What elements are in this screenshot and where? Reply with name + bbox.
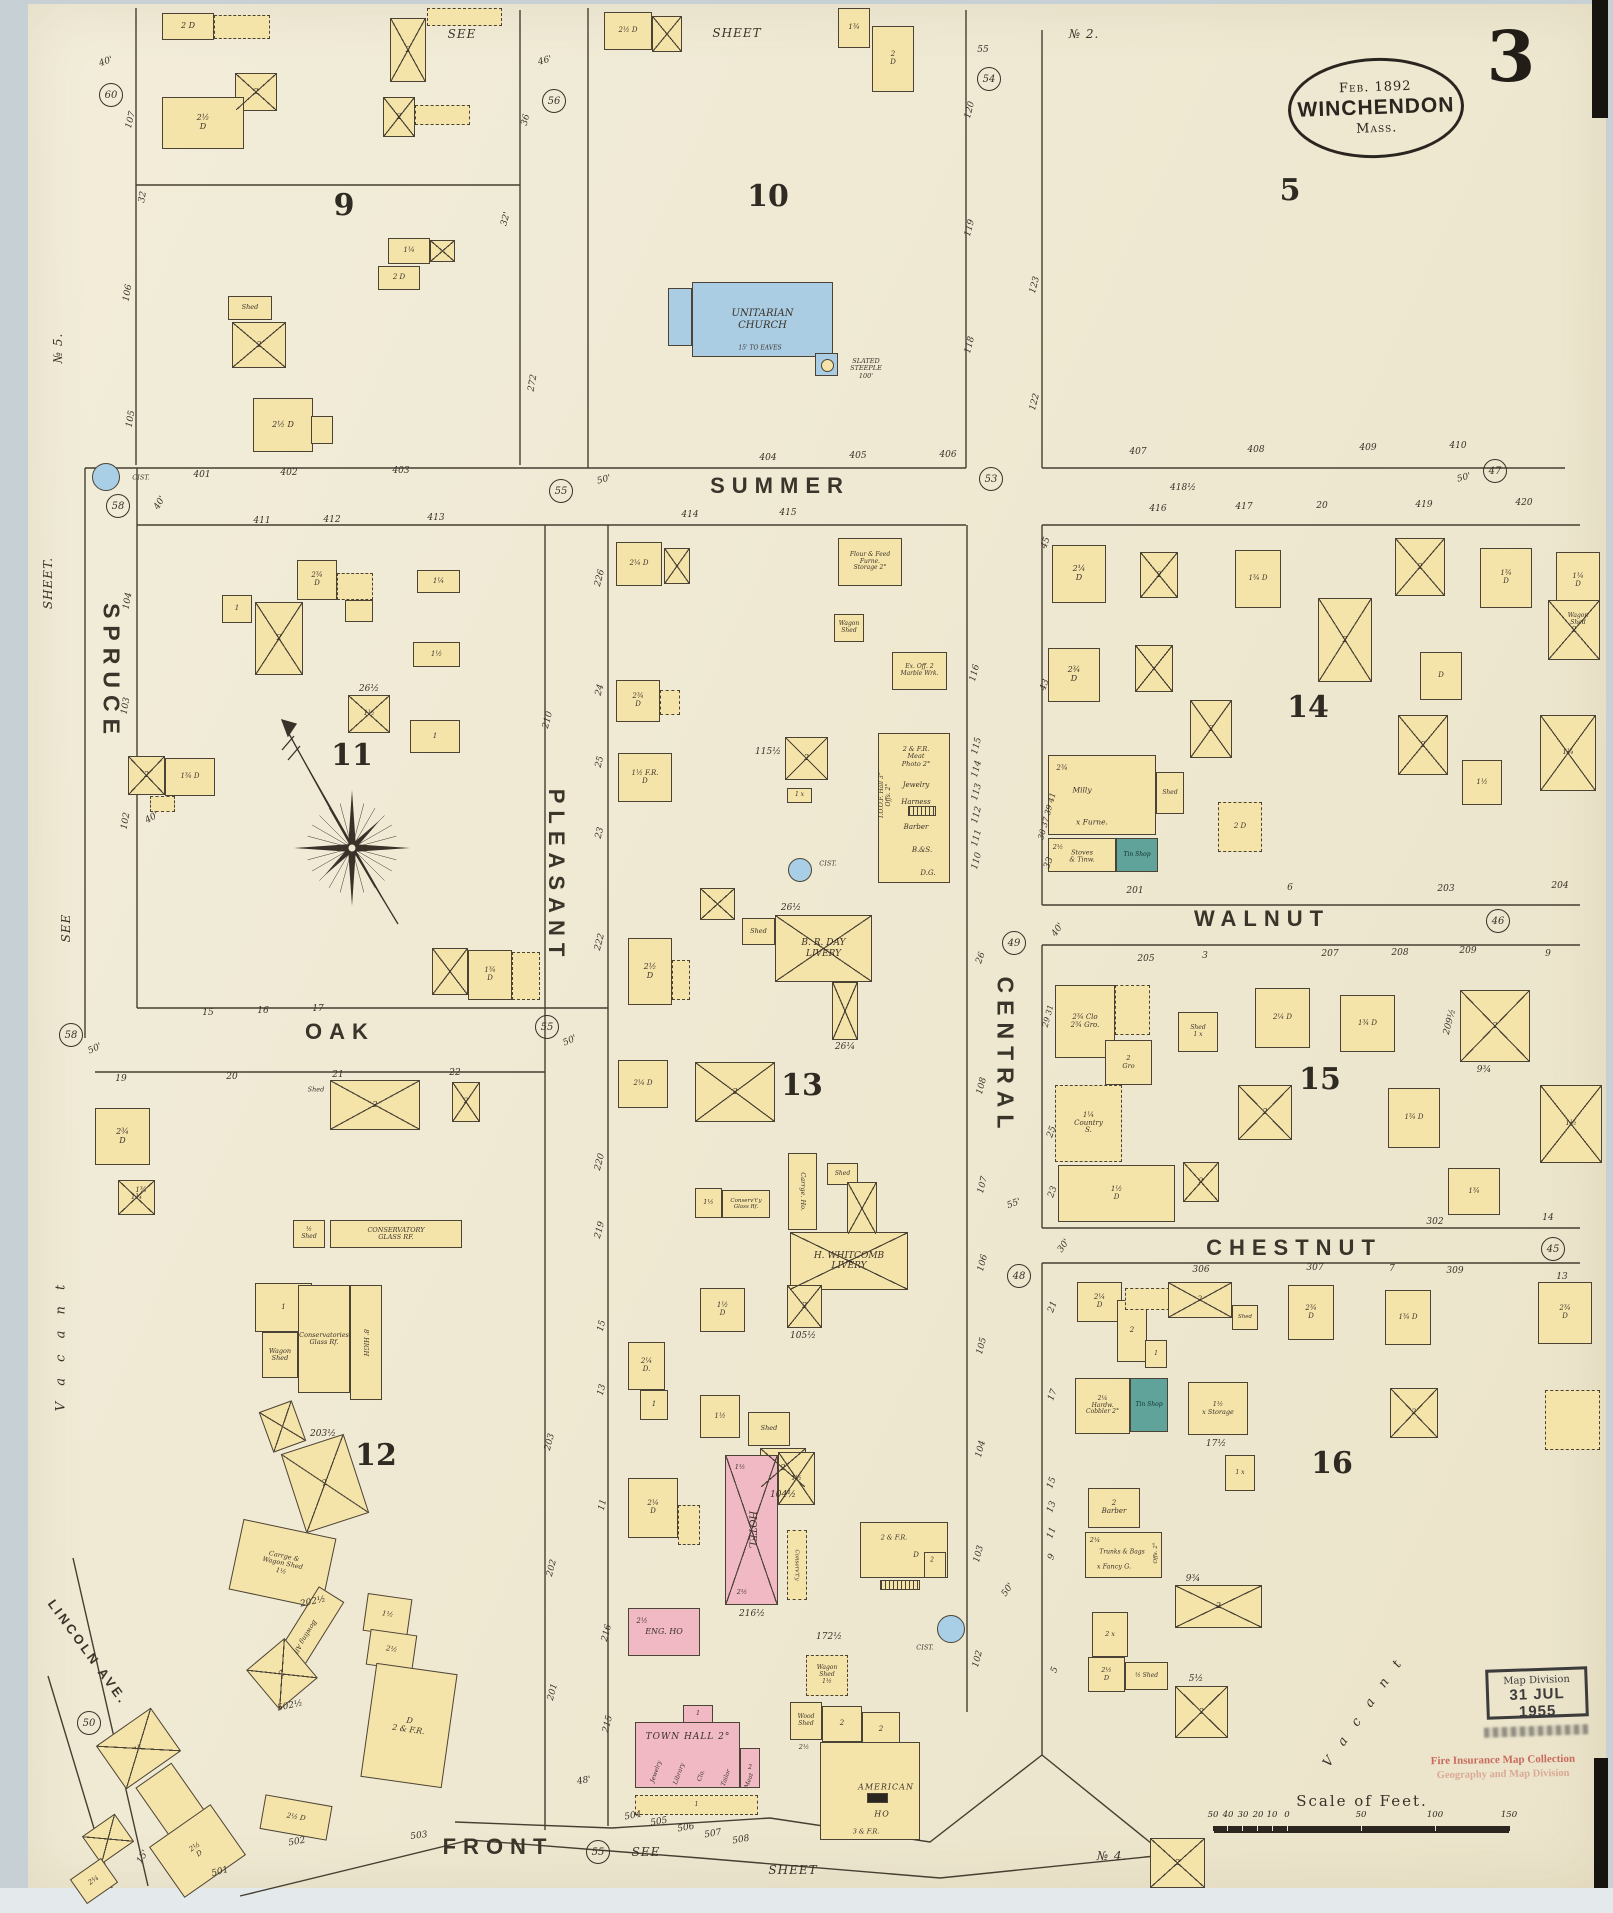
map-label: 415: [779, 508, 796, 518]
building: 2: [695, 1062, 775, 1122]
building: 2¼ D: [1077, 1282, 1122, 1322]
building-label: 2½: [385, 1645, 397, 1654]
building: [700, 888, 735, 920]
building-label: 1½ D: [1111, 1186, 1122, 1202]
building-label: Flour & Feed Furne. Storage 2°: [850, 552, 890, 572]
street-line: [1042, 1755, 1162, 1852]
building: [815, 353, 838, 376]
distance-marker: 55: [535, 1015, 559, 1039]
building-label: 2: [732, 1088, 737, 1097]
block-number: 11: [331, 741, 373, 771]
building: 2¼ D: [618, 1060, 668, 1108]
building-label: 2¾ Clo 2¾ Gro.: [1071, 1014, 1100, 1030]
building: [652, 16, 682, 52]
building-label: 1½: [1565, 1120, 1576, 1128]
building-label: 1¾: [131, 1194, 142, 1202]
map-label: x Furne.: [1076, 819, 1108, 828]
building-label: CONSERVATORY GLASS RF.: [367, 1227, 424, 1242]
building: 2: [1238, 1085, 1292, 1140]
building-label: 1¾: [848, 24, 859, 32]
building: 1¼ Country S.: [1055, 1085, 1122, 1162]
building: [678, 1505, 700, 1545]
map-label: 17: [312, 1004, 323, 1014]
map-label: 1½: [735, 1463, 745, 1471]
building: 2: [1318, 598, 1372, 682]
building-label: 2: [1130, 1327, 1134, 1335]
building: ENG. HO: [628, 1608, 700, 1656]
street-label: CENTRAL: [994, 977, 1017, 1136]
map-label: AMERICAN: [858, 1783, 914, 1792]
cistern: [92, 463, 120, 491]
building-label: 1: [433, 733, 437, 741]
map-label: 409: [1359, 443, 1376, 453]
building-label: 1½ D: [717, 1302, 728, 1318]
map-label: 16: [257, 1006, 268, 1016]
building-label: 2: [144, 771, 149, 780]
map-label: 19: [115, 1074, 126, 1084]
building: 8' HIGH: [350, 1285, 382, 1400]
building-label: 2¾ D: [116, 1128, 129, 1146]
map-label: 5½: [1189, 1674, 1203, 1684]
map-label: 55: [977, 45, 988, 55]
building-label: 1: [235, 605, 239, 613]
building-label: 1½ F.R. D: [632, 770, 659, 786]
building: 1½ D: [700, 1288, 745, 1332]
building-label: 2: [840, 1720, 844, 1728]
building: 2: [390, 18, 426, 82]
building: 1 x: [1225, 1455, 1255, 1491]
map-label: 407: [1129, 447, 1146, 457]
building: 1¾: [1448, 1168, 1500, 1215]
map-label: CIST.: [132, 474, 149, 481]
map-label: 420: [1515, 498, 1532, 508]
building: [832, 982, 858, 1040]
building-label: 2: [1262, 1108, 1267, 1117]
map-label: I.O.O.F. Hall 3° Offs. 2°: [879, 772, 893, 818]
map-label: № 2.: [1069, 27, 1100, 41]
map-label: SHEET.: [41, 557, 55, 609]
building-label: 2 D: [1234, 823, 1246, 831]
building: 2 D: [378, 266, 420, 290]
building: H. WHITCOMB LIVERY: [790, 1232, 908, 1290]
building: Conserv't'y Glass Rf.: [722, 1190, 770, 1218]
block-number: 16: [1311, 1449, 1353, 1479]
building-label: Conservatories Glass Rf.: [299, 1332, 349, 1347]
map-label: 32: [137, 190, 149, 203]
map-label: 405: [849, 451, 866, 461]
map-label: 208: [1391, 948, 1408, 958]
building-label: 2: [253, 88, 258, 97]
building: [668, 288, 692, 346]
building-label: UNITARIAN CHURCH: [732, 308, 794, 330]
building-label: 8' HIGH: [362, 1329, 369, 1356]
building-label: Shed: [1238, 1314, 1252, 1320]
map-label: 26½: [359, 684, 379, 694]
building: 1¾ D: [1340, 995, 1395, 1052]
building: 2¾ D: [616, 680, 660, 722]
map-label: 2¾: [1056, 764, 1067, 772]
map-label: 418½: [1170, 483, 1196, 493]
building: Shed: [748, 1412, 790, 1446]
scale-tick-label: 50: [1356, 1810, 1367, 1820]
building-label: Shed: [750, 928, 767, 935]
map-label: CIST.: [916, 1644, 933, 1651]
street-label: CHESTNUT: [1206, 1237, 1382, 1259]
distance-marker: 53: [979, 467, 1003, 491]
building-label: 1¼: [1562, 749, 1573, 757]
building: 2: [785, 737, 828, 780]
building-label: 1: [696, 1711, 700, 1718]
building: [924, 1552, 946, 1578]
building: 1: [640, 1390, 668, 1420]
distance-marker: 58: [106, 494, 130, 518]
title-city: WINCHENDON: [1297, 93, 1455, 124]
map-label: 105½: [790, 1331, 816, 1341]
map-label: 203½: [310, 1429, 336, 1439]
building-label: 2: [1208, 725, 1213, 734]
building-label: 1¼ Country S.: [1074, 1112, 1103, 1135]
building: 1: [410, 720, 460, 753]
building-label: 2: [321, 1478, 329, 1488]
building: [345, 600, 373, 622]
building: 1¾: [838, 8, 870, 48]
map-label: 302: [1426, 1217, 1443, 1227]
building: [660, 690, 680, 715]
building-label: 2: [780, 1464, 785, 1473]
scale-tick-label: 100: [1427, 1810, 1443, 1820]
map-label: SHEET: [768, 1863, 817, 1877]
building-label: 2: [256, 341, 261, 350]
map-label: Milly: [1072, 787, 1091, 796]
building: Tin Shop: [1116, 838, 1158, 872]
building-label: HOTEL: [746, 1511, 757, 1549]
map-label: D.G.: [920, 869, 935, 877]
building: [1545, 1390, 1600, 1450]
map-label: Trunks & Bags: [1099, 1550, 1144, 1557]
building-label: 2: [372, 1101, 377, 1110]
building: [311, 416, 333, 444]
building-label: 2 D: [393, 274, 405, 282]
map-label: 7: [1389, 1264, 1395, 1274]
building-label: Tin Shop: [1135, 1402, 1162, 1409]
building-label: B. R. DAY LIVERY: [801, 938, 845, 958]
building: 2: [1183, 1162, 1219, 1202]
map-label: 402: [280, 468, 297, 478]
building-label: 2: [1156, 571, 1161, 580]
building-label: 1: [652, 1401, 656, 1409]
map-label: 207: [1321, 949, 1338, 959]
building: 1 x: [787, 788, 812, 803]
building-label: 1¼ D: [1572, 573, 1583, 589]
block-number: 15: [1299, 1065, 1341, 1095]
building-label: 1¾: [1468, 1188, 1479, 1196]
map-label: 20: [226, 1072, 237, 1082]
block-number: 14: [1287, 693, 1329, 723]
library-date-stamp: Map Division 31 JUL 1955: [1485, 1666, 1589, 1720]
distance-marker: 47: [1483, 459, 1507, 483]
map-label: 2 & F.R.: [881, 1534, 908, 1541]
building-label: 2½ D: [272, 421, 294, 430]
building: 2 D: [872, 26, 914, 92]
building-label: 2¼ D: [633, 1080, 652, 1088]
building-label: Ex. Off. 2 Marble Wrk.: [900, 664, 938, 677]
distance-marker: 60: [99, 83, 123, 107]
building-label: 2½ D: [197, 114, 210, 132]
building: 2¼ D.: [628, 1342, 665, 1390]
building: 2 Gro: [1105, 1040, 1152, 1085]
building-label: 2¾ D: [1305, 1305, 1316, 1321]
scale-bar: [1213, 1826, 1510, 1831]
building-label: Shed: [835, 1171, 850, 1178]
map-label: 13: [1556, 1272, 1567, 1282]
building: 2: [255, 602, 303, 675]
building-label: 2: [1342, 636, 1347, 645]
building-label: 1¾ D: [1404, 1114, 1423, 1122]
building-label: Wagon Shed: [269, 1348, 291, 1363]
building: [432, 948, 468, 995]
building: 1½: [348, 695, 390, 733]
building-label: Shed: [761, 1425, 778, 1432]
building-label: 2¼ Hardw. Cobbler 2°: [1086, 1396, 1119, 1416]
map-label: 2½: [737, 1588, 747, 1596]
building-label: ½: [133, 1743, 143, 1753]
building-label: 2: [1199, 1178, 1203, 1186]
map-label: SLATED STEEPLE 100': [850, 358, 882, 380]
title-state: Mass.: [1356, 120, 1398, 136]
map-label: SEE: [59, 914, 73, 943]
building: Wagon Shed: [262, 1332, 298, 1378]
map-label: 404: [759, 453, 776, 463]
map-label: № 4.: [1097, 1849, 1128, 1863]
building: 2 D: [1218, 802, 1262, 852]
block-number: 13: [781, 1071, 823, 1101]
building: 1: [1145, 1340, 1167, 1368]
building-label: Shed: [242, 304, 259, 311]
street-label: SPRUCE: [100, 603, 123, 741]
map-label: 3 & F.R.: [853, 1828, 880, 1835]
building-label: 2½ D: [188, 1841, 206, 1860]
building: 2¼ D: [628, 1478, 678, 1538]
map-label: 2: [930, 1557, 934, 1564]
map-label: 216½: [739, 1609, 765, 1619]
building: Conserv't'y: [787, 1530, 807, 1600]
building-label: 1: [695, 1802, 699, 1809]
building: 1½ x Storage: [1188, 1382, 1248, 1435]
building: 1½: [695, 1188, 722, 1218]
building-label: 1½: [1476, 779, 1487, 787]
building: B. R. DAY LIVERY: [775, 915, 872, 982]
map-label: SHEET: [712, 26, 761, 40]
scale-tick-label: 40: [1223, 1810, 1234, 1820]
collection-stamp: Fire Insurance Map Collection Geography …: [1428, 1753, 1578, 1782]
building: Wagon Shed 1½: [806, 1655, 848, 1696]
building: Ex. Off. 2 Marble Wrk.: [892, 652, 947, 690]
building-label: 1¾ D: [1358, 1020, 1377, 1028]
map-label: 410: [1449, 441, 1466, 451]
building: [664, 548, 690, 584]
building-label: ½ Shed: [1135, 1673, 1158, 1680]
building-label: 1½: [791, 1475, 801, 1482]
building: Flour & Feed Furne. Storage 2°: [838, 538, 902, 586]
building-label: Carrge. Ho.: [799, 1172, 806, 1211]
building-label: Conserv't'y: [794, 1549, 800, 1580]
building: Conservatories Glass Rf.: [298, 1285, 350, 1393]
building-label: 2¼ D: [647, 1500, 658, 1516]
building: 2: [383, 97, 415, 137]
building: 2¾ D: [95, 1108, 150, 1165]
street-label: SUMMER: [710, 475, 850, 497]
map-label: 2 & F.R. Meat Photo 2°: [902, 746, 930, 768]
building-label: 2: [405, 46, 410, 55]
map-label: 20: [1316, 501, 1327, 511]
building: 1¼: [388, 238, 430, 264]
map-label: CIST.: [819, 860, 836, 867]
building: 1½: [1462, 760, 1502, 805]
map-label: 2¼: [1090, 1536, 1100, 1544]
building: [908, 806, 936, 816]
distance-marker: 55: [549, 479, 573, 503]
distance-marker: 56: [542, 89, 566, 113]
building: 1¾ D: [468, 950, 512, 1000]
building: 2: [787, 1285, 822, 1328]
building-label: 2¼ D: [1273, 1014, 1292, 1022]
building: 2: [1390, 1388, 1438, 1438]
building: Shed 1 x: [1178, 1012, 1218, 1052]
building: 2: [822, 1706, 862, 1742]
building: 2: [1168, 1282, 1232, 1318]
building: 2: [1140, 552, 1178, 598]
building: 2½ D: [162, 97, 244, 149]
building-label: 1½: [703, 1199, 713, 1206]
building-label: 1½: [381, 1610, 393, 1619]
building: 2: [1175, 1686, 1228, 1738]
building-label: 1½: [431, 651, 442, 659]
building: Shed: [1232, 1305, 1258, 1330]
map-label: 2½: [636, 1617, 647, 1625]
map-label: 14: [1542, 1213, 1553, 1223]
sheet-number: 3: [1476, 22, 1546, 92]
building-label: 2: [277, 1669, 287, 1679]
distance-marker: 58: [59, 1023, 83, 1047]
map-label: 9: [1545, 949, 1551, 959]
building: [672, 960, 690, 1000]
building-label: 2: [1492, 1022, 1497, 1031]
map-label: 416: [1149, 504, 1166, 514]
building-label: 2: [1420, 741, 1425, 750]
building: 2¼ Hardw. Cobbler 2°: [1075, 1378, 1130, 1434]
building: 1: [635, 1795, 758, 1815]
building: 2: [128, 756, 165, 795]
map-label: x Fancy G.: [1097, 1563, 1131, 1570]
building: 2¾ D: [297, 560, 337, 600]
building: 2½ D: [628, 938, 672, 1005]
building: Wood Shed: [790, 1702, 822, 1740]
map-label: D: [913, 1551, 919, 1559]
building: [867, 1793, 888, 1803]
scale-title: Scale of Feet.: [1296, 1792, 1428, 1810]
building-label: 2¼ D: [1073, 565, 1086, 583]
map-label: TOWN HALL 2°: [646, 1732, 731, 1742]
building-label: 2½ D: [618, 27, 637, 35]
distance-marker: 45: [1541, 1237, 1565, 1261]
building: 2 Barber: [1088, 1488, 1140, 1528]
block-number: 5: [1280, 176, 1301, 206]
building-label: 2: [802, 1302, 807, 1311]
map-label: 15: [202, 1008, 213, 1018]
scale-tick-label: 0: [1284, 1810, 1289, 1820]
building: Shed: [228, 296, 272, 320]
building-label: 2: [396, 113, 401, 122]
map-label: 406: [939, 450, 956, 460]
building-label: 2: [464, 1098, 468, 1106]
building: 2½ D: [1088, 1657, 1125, 1692]
building: 2: [1460, 990, 1530, 1062]
building: 2¼ D: [616, 542, 662, 586]
building-label: 2¾ D: [1559, 1305, 1570, 1321]
building: Shed: [1156, 772, 1184, 814]
map-label: Harness: [901, 798, 930, 806]
distance-marker: 49: [1002, 931, 1026, 955]
street-label: PLEASANT: [545, 789, 567, 964]
building-label: D: [1438, 672, 1444, 680]
map-label: Wagon Shed: [1568, 613, 1589, 627]
street-line: [240, 1840, 1165, 1896]
map-label: HO: [874, 1810, 890, 1819]
building-label: 1½ x Storage: [1202, 1401, 1234, 1416]
map-label: 17½: [1206, 1439, 1226, 1449]
building-label: Shed: [1162, 790, 1177, 797]
map-label: Shed: [308, 1086, 325, 1093]
map-label: 413: [427, 513, 444, 523]
building-label: Wagon Shed 1½: [817, 1665, 838, 1685]
building-label: 2: [1216, 1602, 1221, 1611]
building-label: 2¼ D: [629, 560, 648, 568]
map-label: 2½: [799, 1743, 809, 1751]
building: 1½ D: [1058, 1165, 1175, 1222]
scale-tick-label: 30: [1238, 1810, 1249, 1820]
building-label: 2 x: [1105, 1631, 1115, 1638]
building: 2¾ D: [1288, 1285, 1334, 1340]
building-label: 1¾ D: [1398, 1314, 1417, 1322]
building-label: 2: [1412, 1409, 1416, 1417]
scale-tick-label: 50: [1208, 1810, 1219, 1820]
building: D 2 & F.R.: [360, 1663, 457, 1788]
map-label: 417: [1235, 502, 1252, 512]
map-label: SEE: [632, 1845, 661, 1859]
map-label: 9¾: [1186, 1574, 1200, 1584]
building-label: 1½: [714, 1413, 725, 1421]
building-label: 2½ D: [286, 1812, 306, 1823]
map-label: 26¼: [835, 1042, 855, 1052]
building: 1¼: [1540, 715, 1596, 791]
building-label: 2 D: [181, 22, 195, 31]
map-label: 411: [253, 516, 270, 526]
building-label: 1½: [363, 710, 374, 718]
block-number: 9: [334, 191, 355, 221]
collection-stamp-line1: Fire Insurance Map Collection: [1428, 1753, 1578, 1768]
building-label: 1: [1154, 1351, 1158, 1358]
building-label: 1¼: [403, 247, 414, 255]
street-label: OAK: [305, 1021, 375, 1043]
building: 1½ F.R. D: [618, 753, 672, 802]
map-label: 401: [193, 470, 210, 480]
block-number: 12: [355, 1441, 397, 1471]
map-label: № 5.: [51, 333, 65, 364]
map-label: Offs. 2°: [1153, 1543, 1159, 1564]
distance-marker: 46: [1486, 909, 1510, 933]
map-label: 115½: [755, 747, 781, 757]
map-label: 204: [1551, 881, 1568, 891]
